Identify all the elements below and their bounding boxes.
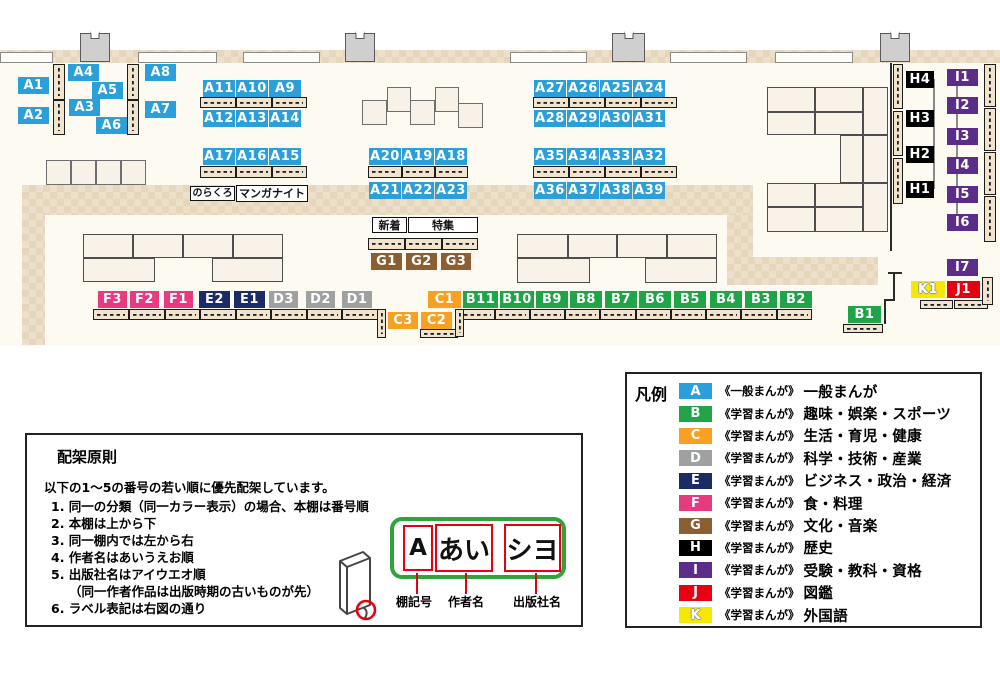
map-label-A27: A27 bbox=[534, 80, 566, 97]
pointer-line bbox=[465, 573, 467, 594]
principle-line-3: 4. 作者名はあいうえお順 bbox=[51, 549, 369, 566]
legend-row-I: I《学習まんが》受験・教科・資格 bbox=[679, 559, 952, 581]
legend-row-F: F《学習まんが》食・料理 bbox=[679, 492, 952, 514]
map-label-A23: A23 bbox=[435, 182, 467, 199]
bookshelf bbox=[893, 111, 903, 156]
table-block bbox=[212, 258, 283, 282]
map-label-G2: G2 bbox=[406, 253, 437, 270]
legend-badge-B: B bbox=[679, 406, 712, 422]
legend-row-A: A《一般まんが》一般まんが bbox=[679, 380, 952, 402]
map-label-B7: B7 bbox=[605, 291, 637, 308]
map-label-A26: A26 bbox=[567, 80, 599, 97]
map-label-B8: B8 bbox=[570, 291, 602, 308]
bookshelf bbox=[442, 238, 478, 250]
pillar-notch bbox=[624, 31, 633, 39]
table-block bbox=[568, 234, 617, 258]
label-author: あい bbox=[438, 530, 490, 567]
wall-window bbox=[138, 52, 217, 63]
bookshelf bbox=[565, 309, 600, 320]
legend-category: 一般まんが bbox=[804, 381, 878, 402]
map-label-A33: A33 bbox=[600, 148, 632, 165]
bookshelf bbox=[200, 97, 236, 108]
legend-category: 図鑑 bbox=[804, 582, 834, 603]
legend-badge-E: E bbox=[679, 473, 712, 489]
bookshelf bbox=[200, 309, 236, 320]
map-label-A39: A39 bbox=[633, 182, 665, 199]
map-label-A37: A37 bbox=[567, 182, 599, 199]
bookshelf bbox=[200, 166, 236, 178]
map-note-0: のらくろ bbox=[190, 186, 235, 201]
legend-badge-J: J bbox=[679, 585, 712, 601]
bookshelf bbox=[530, 309, 565, 320]
bookshelf bbox=[236, 97, 272, 108]
map-label-D3: D3 bbox=[269, 291, 298, 308]
table-block bbox=[83, 258, 155, 282]
caption-author: 作者名 bbox=[448, 593, 484, 610]
bookshelf bbox=[777, 309, 812, 320]
walkway bbox=[727, 257, 878, 285]
label-publisher-box: シヨ bbox=[504, 524, 561, 572]
bookshelf bbox=[984, 108, 996, 151]
map-label-H4: H4 bbox=[906, 71, 934, 88]
wall-window bbox=[670, 52, 747, 63]
map-label-B5: B5 bbox=[674, 291, 706, 308]
map-label-B3: B3 bbox=[745, 291, 777, 308]
bookshelf bbox=[272, 166, 307, 178]
legend-category: 外国語 bbox=[804, 605, 848, 626]
bookshelf bbox=[533, 166, 569, 178]
bookshelf bbox=[706, 309, 741, 320]
wall-line bbox=[884, 299, 886, 324]
map-label-I2: I2 bbox=[947, 97, 978, 114]
connector-line bbox=[933, 79, 935, 189]
table-block bbox=[617, 234, 667, 258]
bookshelf bbox=[893, 158, 903, 204]
map-label-A13: A13 bbox=[236, 110, 268, 127]
map-label-E2: E2 bbox=[199, 291, 230, 308]
map-label-A7: A7 bbox=[145, 101, 176, 118]
legend-type: 《学習まんが》 bbox=[719, 518, 800, 534]
wall-line bbox=[890, 63, 892, 251]
legend-type: 《学習まんが》 bbox=[719, 473, 800, 489]
map-label-A10: A10 bbox=[236, 80, 268, 97]
map-label-G1: G1 bbox=[371, 253, 402, 270]
map-label-K1: K1 bbox=[911, 281, 945, 298]
legend-row-C: C《学習まんが》生活・育児・健康 bbox=[679, 425, 952, 447]
map-label-C3: C3 bbox=[388, 312, 418, 329]
legend-row-G: G《学習まんが》文化・音楽 bbox=[679, 514, 952, 536]
table-block bbox=[815, 183, 863, 207]
label-shelf-code: A bbox=[409, 535, 427, 561]
legend-badge-K: K bbox=[679, 607, 712, 623]
legend-row-E: E《学習まんが》ビジネス・政治・経済 bbox=[679, 470, 952, 492]
table-block bbox=[667, 234, 717, 258]
principle-line-0: 1. 同一の分類（同一カラー表示）の場合、本棚は番号順 bbox=[51, 498, 369, 515]
map-label-B11: B11 bbox=[463, 291, 498, 308]
table-block bbox=[863, 87, 888, 135]
pillar-notch bbox=[356, 31, 365, 39]
bookshelf bbox=[420, 329, 458, 338]
legend-category: 受験・教科・資格 bbox=[804, 560, 922, 581]
table-block bbox=[517, 234, 568, 258]
bookshelf bbox=[377, 309, 386, 338]
bookshelf bbox=[127, 100, 139, 135]
table-block bbox=[840, 135, 863, 183]
bookshelf bbox=[636, 309, 671, 320]
bookshelf bbox=[569, 166, 605, 178]
table-block bbox=[767, 207, 815, 232]
map-label-F1: F1 bbox=[164, 291, 193, 308]
principle-line-4: 5. 出版社名はアイウエオ順 bbox=[51, 566, 369, 583]
legend-badge-C: C bbox=[679, 428, 712, 444]
table-square bbox=[96, 160, 121, 185]
table-square bbox=[410, 100, 435, 125]
bookshelf bbox=[641, 97, 677, 108]
table-block bbox=[83, 234, 133, 258]
bookshelf bbox=[641, 166, 677, 178]
table-block bbox=[233, 234, 283, 258]
map-label-A16: A16 bbox=[236, 148, 268, 165]
principles-intro: 以下の1～5の番号の若い順に優先配架しています。 bbox=[44, 477, 335, 496]
principle-line-1: 2. 本棚は上から下 bbox=[51, 515, 369, 532]
bookshelf bbox=[402, 166, 435, 178]
bookshelf bbox=[271, 309, 307, 320]
bookshelf bbox=[605, 97, 641, 108]
bookshelf bbox=[368, 166, 402, 178]
legend-category: ビジネス・政治・経済 bbox=[804, 470, 952, 491]
label-publisher: シヨ bbox=[506, 530, 558, 567]
bookshelf bbox=[53, 64, 65, 100]
map-label-A25: A25 bbox=[600, 80, 632, 97]
table-block bbox=[133, 234, 183, 258]
table-block bbox=[815, 87, 863, 112]
bookshelf bbox=[569, 97, 605, 108]
table-block bbox=[645, 258, 717, 283]
table-square bbox=[362, 100, 387, 125]
legend-type: 《学習まんが》 bbox=[719, 562, 800, 578]
map-note-3: 特集 bbox=[408, 217, 478, 233]
map-label-A30: A30 bbox=[600, 110, 632, 127]
bookshelf bbox=[600, 309, 636, 320]
legend-badge-G: G bbox=[679, 518, 712, 534]
bookshelf bbox=[307, 309, 342, 320]
map-label-A22: A22 bbox=[402, 182, 434, 199]
wall-line bbox=[893, 272, 895, 301]
legend-type: 《学習まんが》 bbox=[719, 428, 800, 444]
map-label-A2: A2 bbox=[18, 107, 49, 124]
legend-category: 科学・技術・産業 bbox=[804, 448, 922, 469]
table-block bbox=[815, 112, 863, 135]
bookshelf bbox=[533, 97, 569, 108]
pointer-line bbox=[416, 573, 418, 594]
map-label-A19: A19 bbox=[402, 148, 434, 165]
map-note-2: 新着 bbox=[372, 217, 407, 233]
map-label-A31: A31 bbox=[633, 110, 665, 127]
table-block bbox=[863, 135, 888, 183]
map-label-A15: A15 bbox=[269, 148, 301, 165]
map-label-A34: A34 bbox=[567, 148, 599, 165]
bookshelf bbox=[460, 309, 495, 320]
bookshelf bbox=[984, 196, 996, 242]
bookshelf bbox=[455, 309, 464, 337]
map-label-A38: A38 bbox=[600, 182, 632, 199]
map-label-I5: I5 bbox=[947, 186, 978, 203]
map-label-I7: I7 bbox=[947, 259, 978, 276]
map-label-A4: A4 bbox=[68, 64, 99, 81]
bookshelf bbox=[495, 309, 530, 320]
principle-line-2: 3. 同一棚内では左から右 bbox=[51, 532, 369, 549]
map-label-B6: B6 bbox=[639, 291, 671, 308]
map-label-A6: A6 bbox=[96, 117, 127, 134]
bookshelf bbox=[982, 277, 993, 305]
table-square bbox=[71, 160, 96, 185]
bookshelf bbox=[368, 238, 405, 250]
map-label-H3: H3 bbox=[906, 110, 934, 127]
pillar bbox=[80, 33, 110, 62]
bookshelf bbox=[53, 100, 65, 135]
bookshelf bbox=[671, 309, 706, 320]
pillar-notch bbox=[91, 31, 100, 39]
principles-list: 1. 同一の分類（同一カラー表示）の場合、本棚は番号順2. 本棚は上から下3. … bbox=[51, 498, 369, 617]
map-label-A32: A32 bbox=[633, 148, 665, 165]
legend-badge-A: A bbox=[679, 383, 712, 399]
table-block bbox=[767, 87, 815, 112]
map-label-D1: D1 bbox=[342, 291, 372, 308]
bookshelf bbox=[129, 309, 165, 320]
map-label-A12: A12 bbox=[203, 110, 235, 127]
legend-row-K: K《学習まんが》外国語 bbox=[679, 604, 952, 626]
pillar bbox=[612, 33, 645, 62]
table-block bbox=[517, 258, 590, 283]
legend-row-D: D《学習まんが》科学・技術・産業 bbox=[679, 447, 952, 469]
legend-rows: A《一般まんが》一般まんがB《学習まんが》趣味・娯楽・スポーツC《学習まんが》生… bbox=[679, 380, 952, 626]
map-label-I4: I4 bbox=[947, 157, 978, 174]
map-label-F3: F3 bbox=[98, 291, 127, 308]
legend-box: 凡例 A《一般まんが》一般まんがB《学習まんが》趣味・娯楽・スポーツC《学習まん… bbox=[625, 372, 982, 628]
map-label-H2: H2 bbox=[906, 146, 934, 163]
caption-publisher: 出版社名 bbox=[513, 593, 561, 610]
table-square bbox=[435, 87, 459, 112]
legend-badge-D: D bbox=[679, 450, 712, 466]
legend-row-J: J《学習まんが》図鑑 bbox=[679, 582, 952, 604]
map-label-A18: A18 bbox=[435, 148, 467, 165]
bookshelf bbox=[984, 152, 996, 195]
book-icon bbox=[330, 545, 382, 621]
bookshelf bbox=[435, 166, 468, 178]
legend-type: 《学習まんが》 bbox=[719, 540, 800, 556]
legend-badge-I: I bbox=[679, 562, 712, 578]
map-label-A24: A24 bbox=[633, 80, 665, 97]
bookshelf bbox=[843, 324, 883, 333]
bookshelf bbox=[920, 300, 953, 309]
bookshelf bbox=[605, 166, 641, 178]
bookshelf bbox=[405, 238, 442, 250]
pillar-notch bbox=[891, 31, 900, 39]
table-block bbox=[767, 112, 815, 135]
map-label-A17: A17 bbox=[203, 148, 235, 165]
principle-line-6: 6. ラベル表記は右図の通り bbox=[51, 600, 369, 617]
map-label-I1: I1 bbox=[947, 69, 978, 86]
legend-type: 《学習まんが》 bbox=[719, 495, 800, 511]
legend-category: 文化・音楽 bbox=[804, 515, 878, 536]
wall-window bbox=[243, 52, 320, 63]
bookshelf bbox=[127, 64, 139, 100]
table-block bbox=[767, 183, 815, 207]
wall-window bbox=[0, 52, 53, 63]
map-label-A8: A8 bbox=[145, 64, 176, 81]
map-label-B2: B2 bbox=[780, 291, 812, 308]
library-floor-map: A1A2A4A5A3A6A8A7A11A10A9A12A13A14A17A16A… bbox=[0, 0, 1000, 700]
legend-type: 《学習まんが》 bbox=[719, 406, 800, 422]
legend-type: 《学習まんが》 bbox=[719, 450, 800, 466]
label-shelf-code-box: A bbox=[403, 525, 433, 571]
map-label-H1: H1 bbox=[906, 181, 934, 198]
map-label-A3: A3 bbox=[69, 99, 100, 116]
bookshelf bbox=[93, 309, 129, 320]
principle-line-5: （同一作者作品は出版時期の古いものが先） bbox=[51, 583, 369, 600]
legend-badge-H: H bbox=[679, 540, 712, 556]
table-block bbox=[815, 207, 863, 232]
table-block bbox=[863, 183, 888, 232]
bookshelf bbox=[236, 309, 271, 320]
map-label-A11: A11 bbox=[203, 80, 235, 97]
pillar bbox=[345, 33, 375, 62]
legend-row-B: B《学習まんが》趣味・娯楽・スポーツ bbox=[679, 402, 952, 424]
principles-title: 配架原則 bbox=[57, 446, 117, 467]
map-label-A28: A28 bbox=[534, 110, 566, 127]
label-example: A あい シヨ bbox=[390, 517, 566, 579]
legend-type: 《一般まんが》 bbox=[719, 383, 800, 399]
map-label-A20: A20 bbox=[369, 148, 401, 165]
bookshelf bbox=[165, 309, 200, 320]
map-label-A21: A21 bbox=[369, 182, 401, 199]
map-label-F2: F2 bbox=[130, 291, 159, 308]
map-label-G3: G3 bbox=[441, 253, 471, 270]
map-label-A9: A9 bbox=[269, 80, 301, 97]
wall-window bbox=[775, 52, 853, 63]
pointer-line bbox=[535, 573, 537, 594]
map-label-B10: B10 bbox=[500, 291, 534, 308]
table-square bbox=[387, 87, 411, 112]
table-square bbox=[46, 160, 71, 185]
legend-badge-F: F bbox=[679, 495, 712, 511]
table-square bbox=[458, 103, 483, 128]
map-label-A14: A14 bbox=[269, 110, 301, 127]
walkway bbox=[727, 215, 753, 260]
caption-shelf-code: 棚記号 bbox=[396, 593, 432, 610]
table-square bbox=[121, 160, 146, 185]
label-author-box: あい bbox=[435, 524, 493, 572]
map-label-B9: B9 bbox=[536, 291, 568, 308]
map-label-A35: A35 bbox=[534, 148, 566, 165]
map-label-C2: C2 bbox=[421, 312, 452, 329]
legend-category: 食・料理 bbox=[804, 493, 863, 514]
legend-category: 歴史 bbox=[804, 537, 834, 558]
legend-row-H: H《学習まんが》歴史 bbox=[679, 537, 952, 559]
bookshelf bbox=[272, 97, 307, 108]
legend-title: 凡例 bbox=[635, 381, 667, 405]
map-label-I6: I6 bbox=[947, 214, 978, 231]
map-label-I3: I3 bbox=[947, 128, 978, 145]
legend-category: 生活・育児・健康 bbox=[804, 425, 922, 446]
bookshelf bbox=[893, 64, 903, 109]
bookshelf bbox=[236, 166, 272, 178]
bookshelf bbox=[741, 309, 777, 320]
bookshelf bbox=[984, 64, 996, 107]
map-label-A36: A36 bbox=[534, 182, 566, 199]
map-label-A5: A5 bbox=[92, 82, 123, 99]
map-label-E1: E1 bbox=[234, 291, 265, 308]
pillar bbox=[880, 33, 910, 62]
map-label-B1: B1 bbox=[848, 306, 881, 323]
principles-box: 配架原則 以下の1～5の番号の若い順に優先配架しています。 1. 同一の分類（同… bbox=[25, 433, 583, 627]
map-label-D2: D2 bbox=[306, 291, 335, 308]
legend-type: 《学習まんが》 bbox=[719, 607, 800, 623]
map-note-1: マンガナイト bbox=[236, 185, 308, 202]
map-label-A29: A29 bbox=[567, 110, 599, 127]
map-label-B4: B4 bbox=[710, 291, 742, 308]
wall-window bbox=[510, 52, 587, 63]
map-label-A1: A1 bbox=[18, 77, 49, 94]
map-label-C1: C1 bbox=[428, 291, 461, 308]
legend-category: 趣味・娯楽・スポーツ bbox=[804, 403, 952, 424]
map-label-J1: J1 bbox=[947, 281, 980, 298]
wall-line bbox=[888, 272, 902, 274]
bookshelf bbox=[342, 309, 378, 320]
table-block bbox=[183, 234, 233, 258]
legend-type: 《学習まんが》 bbox=[719, 585, 800, 601]
